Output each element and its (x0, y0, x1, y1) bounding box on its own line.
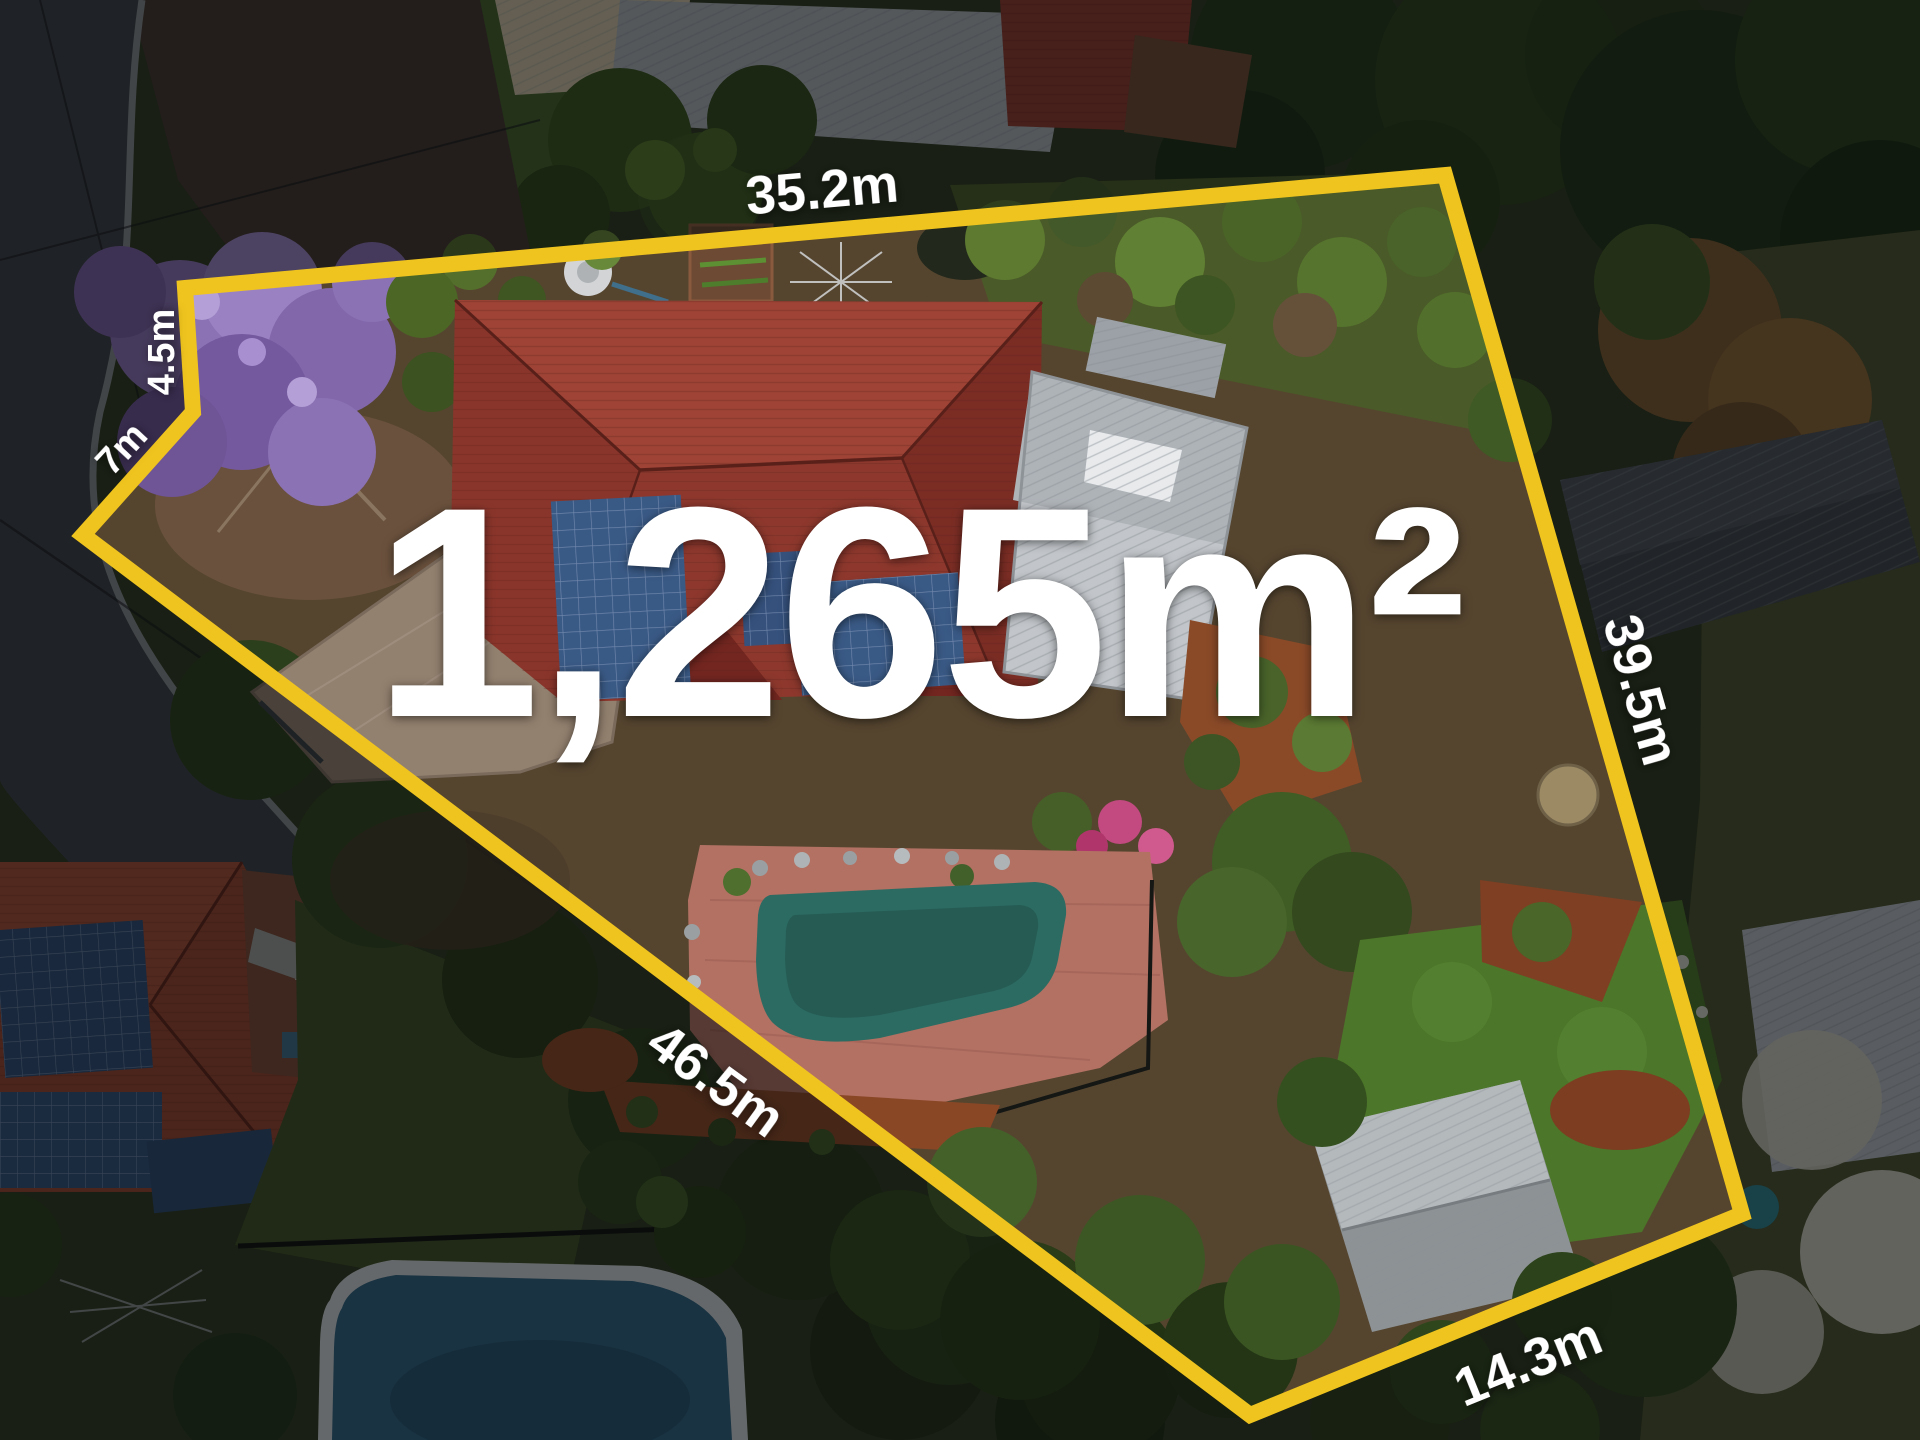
aerial-photo: 35.2m 4.5m 7m 39.5m 46.5m 14.3m 1,265m² (0, 0, 1920, 1440)
property-aerial-view: 35.2m 4.5m 7m 39.5m 46.5m 14.3m 1,265m² (0, 0, 1920, 1440)
area-label: 1,265m² (373, 444, 1462, 780)
round-tank (1538, 765, 1598, 825)
dimension-label-left-upper: 4.5m (141, 309, 183, 396)
